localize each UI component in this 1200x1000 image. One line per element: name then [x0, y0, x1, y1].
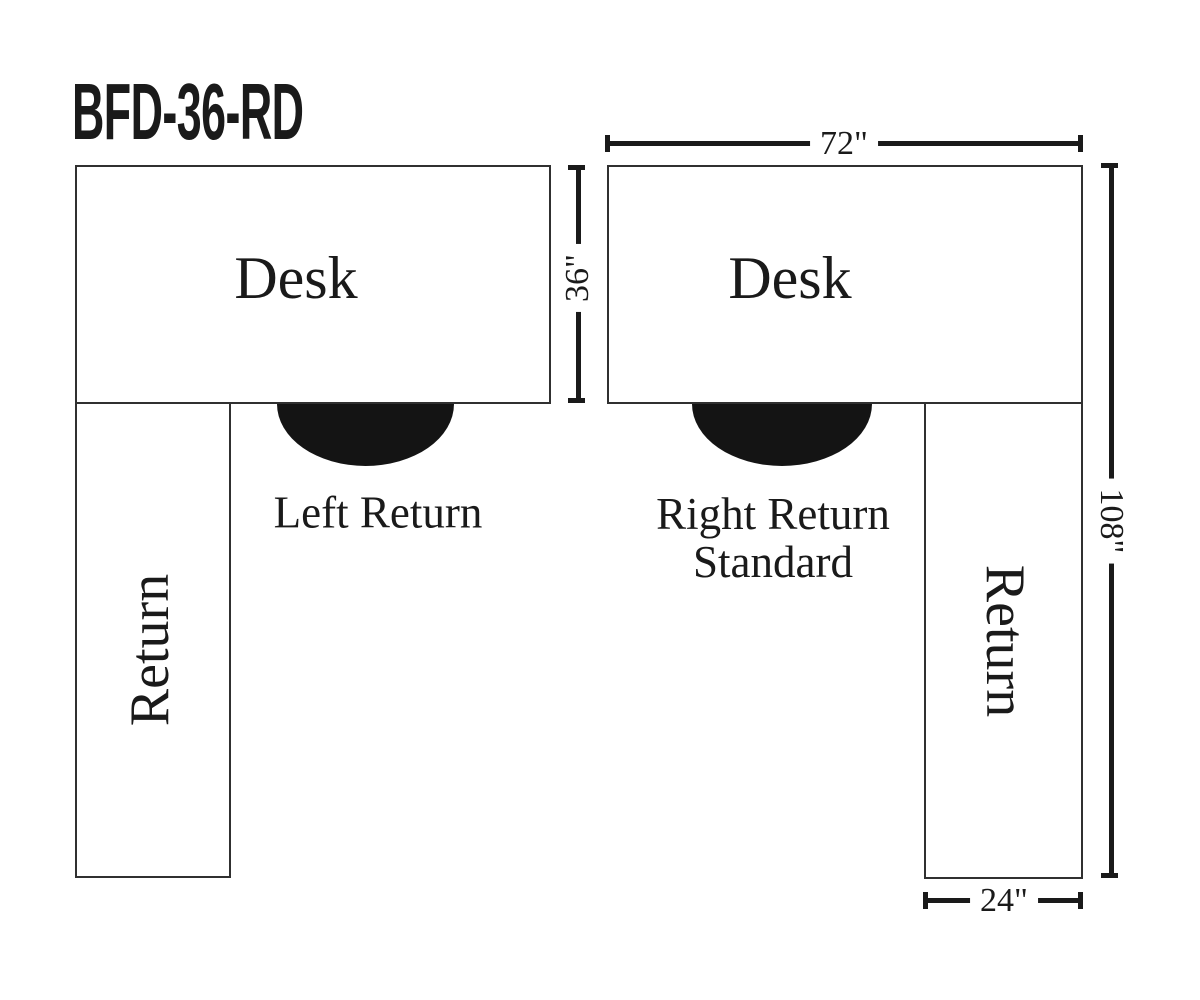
dim-tick [1101, 873, 1118, 878]
dim-tick [1101, 163, 1118, 168]
return-label: Return [977, 565, 1033, 717]
dim-tick [605, 135, 610, 152]
dim-value-return-width: 24" [970, 884, 1038, 918]
return-label: Return [122, 574, 178, 726]
left-return-caption: Left Return [274, 491, 483, 536]
product-diagram: BFD-36-RD Desk Return Left Return Desk R… [0, 0, 1200, 1000]
dim-tick [1078, 135, 1083, 152]
dim-value-desk-depth: 36" [561, 244, 595, 312]
desk-label: Desk [728, 248, 851, 308]
dim-tick [1078, 892, 1083, 909]
dim-tick [568, 398, 585, 403]
dim-tick [568, 165, 585, 170]
right-return-caption: Right Return Standard [656, 490, 890, 586]
dim-tick [923, 892, 928, 909]
desk-label: Desk [234, 248, 357, 308]
right-return-caption-line2: Standard [656, 538, 890, 586]
seat-semicircle-icon [692, 404, 872, 466]
dim-value-overall-depth: 108" [1094, 479, 1128, 564]
seat-semicircle-icon [277, 404, 454, 466]
page-title: BFD-36-RD [72, 66, 303, 158]
right-return-caption-line1: Right Return [656, 490, 890, 538]
dim-value-desk-width: 72" [810, 127, 878, 161]
